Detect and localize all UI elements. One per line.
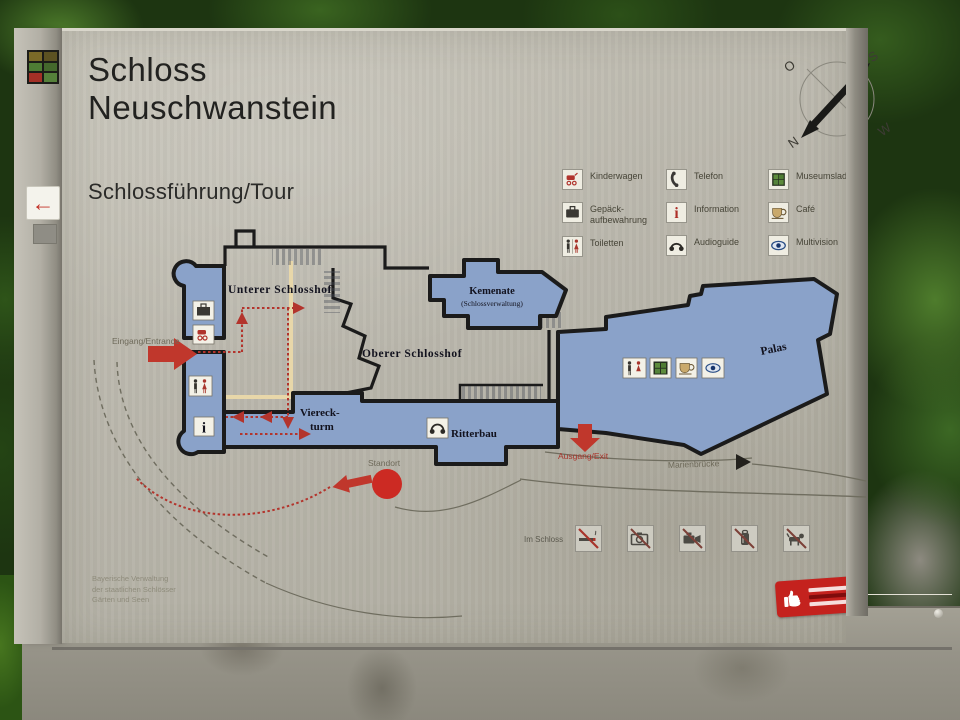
sign-title: Schloss Neuschwanstein xyxy=(88,51,337,128)
palace-administration-logo-icon xyxy=(27,50,59,84)
legend-column-2: Telefon i Information Audioguide xyxy=(666,169,766,268)
sign-frame-edge xyxy=(846,28,868,616)
thumbs-up-icon xyxy=(780,585,806,613)
museum-shop-icon xyxy=(768,169,789,190)
telephone-icon xyxy=(666,169,687,190)
legend-item-toiletten: Toiletten xyxy=(562,236,662,260)
legend-label: Kinderwagen xyxy=(590,171,643,182)
compass-n: N xyxy=(785,133,801,151)
photo-of-sign: ← Schloss Neuschwanstein Schlossführung/… xyxy=(0,0,960,720)
legend-label: Café xyxy=(796,204,815,215)
legend-item-gepaeck: Gepäck- aufbewahrung xyxy=(562,202,662,227)
legend-item-information: i Information xyxy=(666,202,766,226)
no-smoking-icon xyxy=(575,525,602,552)
legend-label: Toiletten xyxy=(590,238,624,249)
prohibitions-heading: Im Schloss xyxy=(524,535,563,544)
administration-credit: Bayerische Verwaltung der staatlichen Sc… xyxy=(92,574,176,606)
compass-rose: O S N W xyxy=(773,37,899,157)
thumbs-up-sticker xyxy=(775,576,853,617)
title-line-2: Neuschwanstein xyxy=(88,89,337,127)
cafe-icon xyxy=(768,202,789,223)
legend-item-kinderwagen: Kinderwagen xyxy=(562,169,662,193)
prohibitions-row: Im Schloss xyxy=(524,525,835,552)
direction-arrow-sticker: ← xyxy=(26,186,60,220)
legend-label: Gepäck- aufbewahrung xyxy=(590,204,647,227)
no-dogs-icon xyxy=(783,525,810,552)
no-photography-icon xyxy=(627,525,654,552)
legend-item-audioguide: Audioguide xyxy=(666,235,766,259)
legend-label: Information xyxy=(694,204,739,215)
svg-text:i: i xyxy=(674,205,679,222)
legend-column-1: Kinderwagen Gepäck- aufbewahrung Toilett… xyxy=(562,169,662,269)
legend-item-telefon: Telefon xyxy=(666,169,766,193)
toilets-icon xyxy=(562,236,583,257)
compass-w: W xyxy=(875,119,894,139)
sign-subtitle: Schlossführung/Tour xyxy=(88,179,294,205)
left-arrow-icon: ← xyxy=(32,192,55,215)
information-sign: Schloss Neuschwanstein Schlossführung/To… xyxy=(62,28,846,643)
no-filming-icon xyxy=(679,525,706,552)
title-line-1: Schloss xyxy=(88,51,337,89)
legend-label: Audioguide xyxy=(694,237,739,248)
sticker-text-bars xyxy=(808,583,848,610)
audioguide-icon xyxy=(666,235,687,256)
legend-label: Telefon xyxy=(694,171,723,182)
multivision-icon xyxy=(768,235,789,256)
information-icon: i xyxy=(666,202,687,223)
legend-label: Multivision xyxy=(796,237,838,248)
no-backpacks-icon xyxy=(731,525,758,552)
sign-post: ← xyxy=(14,28,62,644)
compass-o: O xyxy=(781,57,798,75)
rivet xyxy=(934,609,943,618)
small-plate xyxy=(33,224,57,244)
luggage-icon xyxy=(562,202,583,223)
stroller-icon xyxy=(562,169,583,190)
